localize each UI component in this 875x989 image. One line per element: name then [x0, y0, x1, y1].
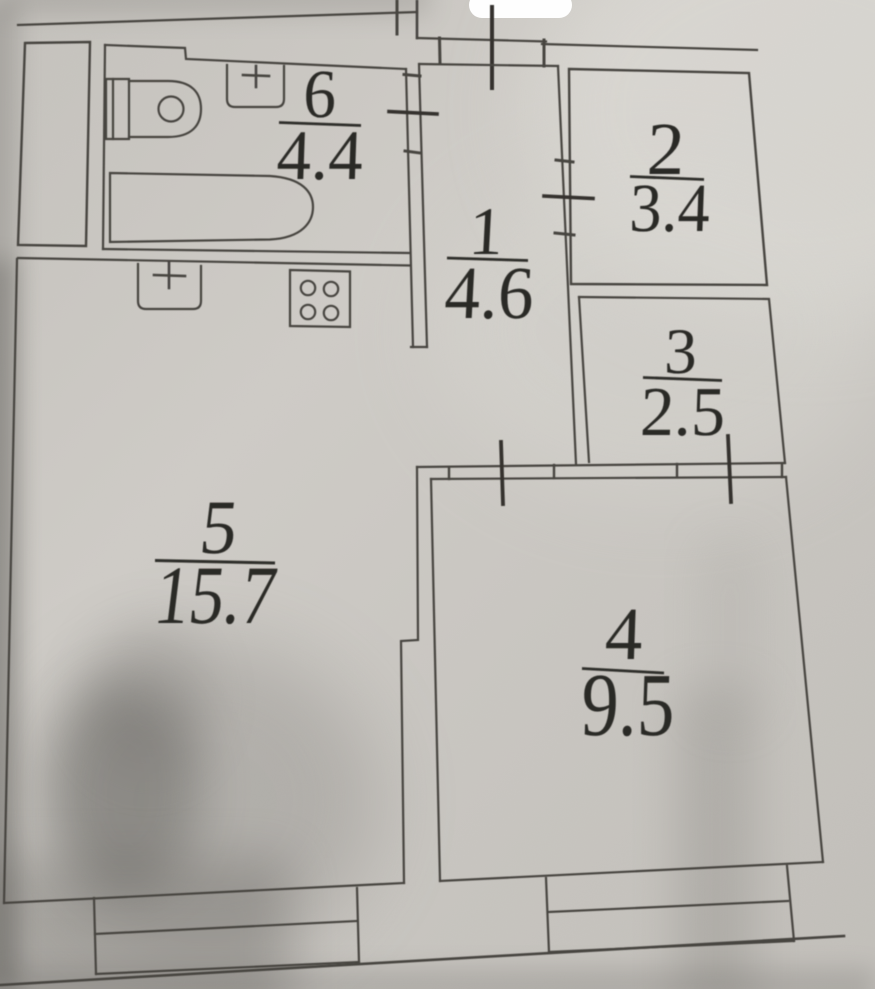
svg-text:9.5: 9.5 [580, 655, 677, 755]
svg-text:3.4: 3.4 [628, 171, 711, 247]
svg-text:2.5: 2.5 [639, 373, 727, 450]
svg-text:15.7: 15.7 [150, 549, 282, 641]
svg-text:4.6: 4.6 [443, 251, 536, 334]
svg-text:4.4: 4.4 [275, 117, 364, 195]
